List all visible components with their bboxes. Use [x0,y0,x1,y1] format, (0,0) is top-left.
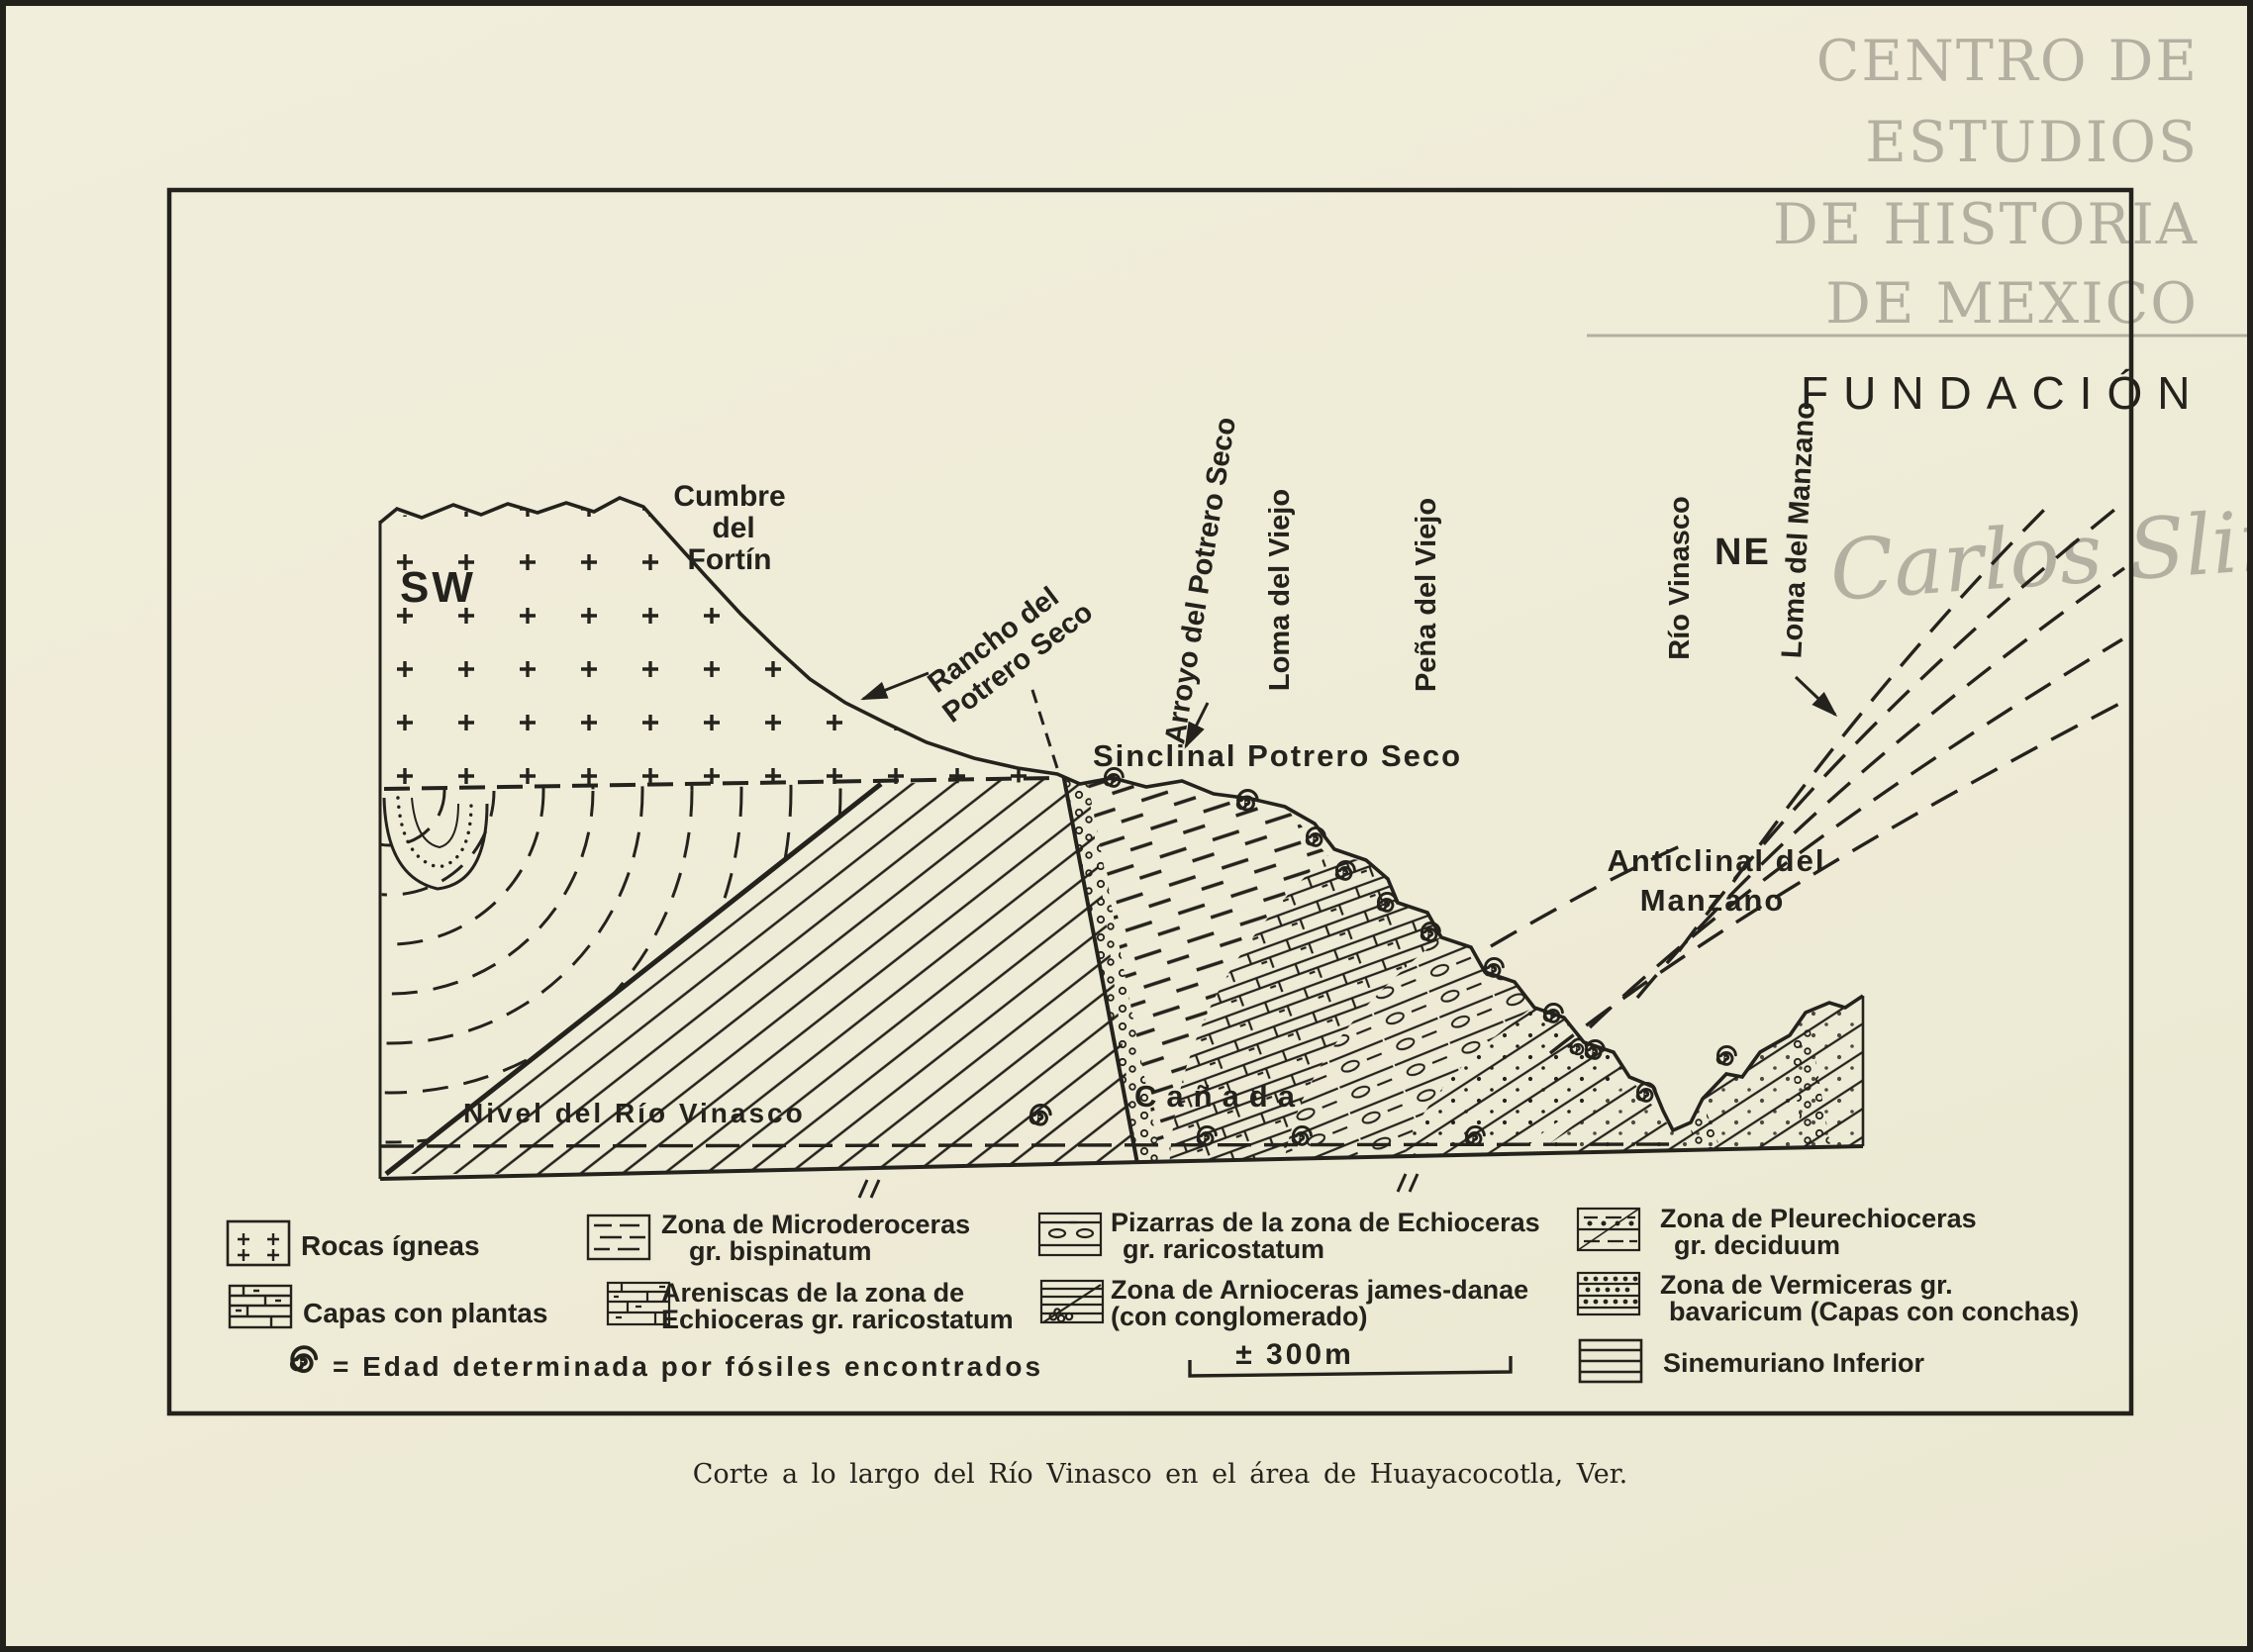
legend-label: gr. deciduum [1674,1230,1840,1260]
legend-swatch-pizarras [1039,1214,1101,1255]
watermark-line-1: CENTRO DE [1816,29,2199,94]
rancho-potrero-seco-label: Rancho del Potrero Seco [918,570,1099,729]
legend-label: bavaricum (Capas con conchas) [1669,1297,2079,1326]
legend-label: Rocas ígneas [301,1230,480,1261]
scanned-page: CENTRO DE ESTUDIOS DE HISTORIA DE MEXICO… [0,0,2253,1652]
sinclinal-potrero-seco-label: Sinclinal Potrero Seco [1093,738,1462,773]
scale-label: ± 300m [1235,1338,1354,1371]
legend-label: Zona de Arnioceras james-danae [1111,1275,1528,1305]
legend-swatch-microderoceras [588,1215,649,1259]
legend-label: Zona de Pleurechioceras [1660,1204,1977,1233]
anticlinal-del-manzano-label: Manzano [1640,883,1786,918]
legend-label: Capas con plantas [303,1298,547,1328]
legend-label: gr. raricostatum [1123,1234,1324,1264]
legend-label: Pizarras de la zona de Echioceras [1111,1208,1540,1237]
loma-manzano-arrow [1796,677,1835,715]
anticlinal-del-manzano-label: Anticlinal del [1608,843,1826,878]
legend: Rocas ígneas Capas con plantas = Edad de… [228,1204,2079,1382]
direction-ne-label: NE [1714,532,1771,573]
geologic-cross-section-figure: CENTRO DE ESTUDIOS DE HISTORIA DE MEXICO… [6,6,2253,1652]
rancho-arrow [863,673,929,699]
cumbre-del-fortin-label: del [712,512,754,544]
legend-swatch-pleurechioceras [1578,1209,1639,1250]
legend-swatch-sinemuriano [1580,1340,1641,1382]
legend-label: Zona de Microderoceras [661,1210,970,1239]
legend-label: Zona de Vermiceras gr. [1660,1270,1953,1300]
watermark-signature: Carlos Slim [1827,489,2253,620]
cumbre-del-fortin-label: Cumbre [673,480,785,513]
legend-swatch-vermiceras [1578,1273,1639,1314]
legend-swatch-areniscas [608,1283,669,1324]
legend-label: Areniscas de la zona de [661,1278,964,1308]
legend-label: Echioceras gr. raricostatum [661,1305,1014,1334]
legend-ammonite-symbol [292,1347,316,1371]
direction-sw-label: SW [400,563,476,612]
watermark-line-3: DE HISTORIA [1773,192,2199,257]
legend-label: gr. bispinatum [689,1236,872,1266]
syncline-axis-dashed [1031,687,1057,768]
watermark-line-4: DE MEXICO [1825,271,2199,337]
scale-bar: ± 300m [1190,1338,1511,1376]
base-tick-marks [859,1174,1418,1198]
rio-vinasco-label: Río Vinasco [1664,496,1696,659]
arroyo-potrero-seco-label: Arroyo del Potrero Seco [1159,415,1242,745]
canada-label: Cañada [1134,1079,1305,1114]
legend-label: Sinemuriano Inferior [1663,1348,1925,1378]
pena-del-viejo-label: Peña del Viejo [1411,498,1442,692]
plant-beds-pocket [384,798,487,889]
legend-label: (con conglomerado) [1111,1302,1368,1331]
loma-del-viejo-label: Loma del Viejo [1264,489,1296,691]
watermark-line-2: ESTUDIOS [1865,110,2199,175]
legend-swatch-capas-plantas [230,1286,291,1327]
legend-swatch-arnioceras [1041,1281,1103,1322]
nivel-rio-vinasco-label: Nivel del Río Vinasco [463,1098,806,1128]
watermark-foundation: FUNDACIÓN [1801,367,2204,419]
figure-caption: Corte a lo largo del Río Vinasco en el á… [693,1459,1627,1490]
legend-fossil-note: = Edad determinada por fósiles encontrad… [333,1351,1043,1382]
cumbre-del-fortin-label: Fortín [688,543,772,576]
loma-del-manzano-label: Loma del Manzano [1776,401,1821,659]
legend-swatch-rocas-igneas [228,1221,289,1265]
